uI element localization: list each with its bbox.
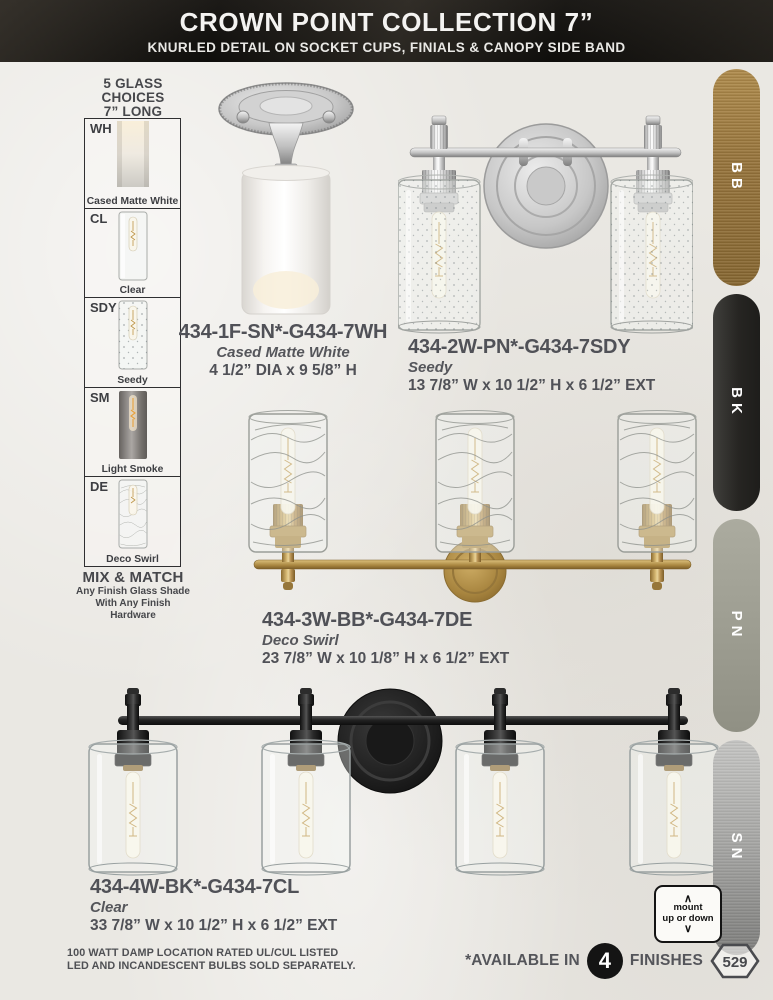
product-glass: Clear xyxy=(90,899,337,917)
finish-code: PN xyxy=(728,610,745,641)
glass-code: SDY xyxy=(90,300,117,315)
glass-choice-sm: SM Light Smoke xyxy=(85,388,180,478)
finish-swatch-bb: BB xyxy=(713,69,760,286)
product-sku: 434-3W-BB*-G434-7DE xyxy=(262,609,509,632)
glass-swatch-de-image xyxy=(104,479,162,551)
available-prefix: *AVAILABLE IN xyxy=(465,952,580,970)
crossbar xyxy=(118,716,688,725)
glass-label: Clear xyxy=(85,285,180,296)
glass-heading-line: 5 GLASS xyxy=(84,77,182,91)
glass-code: CL xyxy=(90,211,107,226)
glass-code: SM xyxy=(90,390,110,405)
finish-swatch-bk: BK xyxy=(713,294,760,511)
finish-code: SN xyxy=(728,832,745,863)
footer-note-line2: LED AND INCANDESCENT BULBS SOLD SEPARATE… xyxy=(67,960,356,973)
glass-heading-line: CHOICES xyxy=(84,91,182,105)
product-block-4w: 434-4W-BK*-G434-7CL Clear 33 7/8” W x 10… xyxy=(90,876,337,936)
glass-label: Cased Matte White xyxy=(85,196,180,207)
mix-match-line: Hardware xyxy=(72,610,194,622)
mount-direction-badge: ∧ mount up or down ∨ xyxy=(654,885,722,943)
glass-code: DE xyxy=(90,479,108,494)
mix-match-line: With Any Finish xyxy=(72,598,194,610)
product-sku: 434-4W-BK*-G434-7CL xyxy=(90,876,337,899)
product-glass: Deco Swirl xyxy=(262,632,509,650)
glass-label: Deco Swirl xyxy=(85,554,180,565)
white-glass-shade xyxy=(242,166,330,315)
finish-code: BB xyxy=(728,162,745,194)
wall-plate xyxy=(338,689,442,793)
footer-note: 100 WATT DAMP LOCATION RATED UL/CUL LIST… xyxy=(67,947,356,973)
mix-match-title: MIX & MATCH xyxy=(72,569,194,586)
glass-label: Light Smoke xyxy=(85,464,180,475)
fixture-3w-photo xyxy=(240,408,705,608)
product-block-2w: 434-2W-PN*-G434-7SDY Seedy 13 7/8” W x 1… xyxy=(408,336,655,396)
glass-choice-cl: CL Clear xyxy=(85,209,180,299)
chevron-down-icon: ∨ xyxy=(684,925,692,933)
glass-choice-wh: WH Cased Matte White xyxy=(85,119,180,209)
catalog-page: CROWN POINT COLLECTION 7” KNURLED DETAIL… xyxy=(0,0,773,1000)
glass-heading-line: 7” LONG xyxy=(84,105,182,119)
product-dimensions: 33 7/8” W x 10 1/2” H x 6 1/2” EXT xyxy=(90,917,337,936)
product-sku: 434-2W-PN*-G434-7SDY xyxy=(408,336,655,359)
glass-code: WH xyxy=(90,121,112,136)
product-dimensions: 4 1/2” DIA x 9 5/8” H xyxy=(163,362,403,381)
finish-swatch-pn: PN xyxy=(713,519,760,732)
crossbar xyxy=(410,148,681,157)
product-glass: Cased Matte White xyxy=(163,344,403,362)
product-sku: 434-1F-SN*-G434-7WH xyxy=(163,321,403,344)
product-block-3w: 434-3W-BB*-G434-7DE Deco Swirl 23 7/8” W… xyxy=(262,609,509,669)
page-number-badge: 529 xyxy=(710,942,760,980)
footer-note-line1: 100 WATT DAMP LOCATION RATED UL/CUL LIST… xyxy=(67,947,356,960)
glass-label: Seedy xyxy=(85,375,180,386)
glass-swatch-wh-image xyxy=(104,121,162,193)
wall-plate xyxy=(484,124,608,248)
glass-swatch-sm-image xyxy=(104,390,162,462)
glass-choice-de: DE Deco Swirl xyxy=(85,477,180,566)
product-glass: Seedy xyxy=(408,359,655,377)
page-header: CROWN POINT COLLECTION 7” KNURLED DETAIL… xyxy=(0,0,773,62)
fixture-1f-photo xyxy=(196,76,376,321)
mix-match-line: Any Finish Glass Shade xyxy=(72,586,194,598)
glass-swatch-cl-image xyxy=(104,211,162,283)
glass-choices-heading: 5 GLASS CHOICES 7” LONG xyxy=(84,77,182,118)
seedy-glass-left xyxy=(398,175,480,333)
footer-availability: *AVAILABLE IN 4 FINISHES 529 xyxy=(465,942,760,980)
fixture-4w-photo xyxy=(60,686,725,886)
collection-subtitle: KNURLED DETAIL ON SOCKET CUPS, FINIALS &… xyxy=(0,40,773,55)
fixture-2w-photo xyxy=(398,106,693,336)
product-dimensions: 13 7/8” W x 10 1/2” H x 6 1/2” EXT xyxy=(408,377,655,396)
available-suffix: FINISHES xyxy=(630,952,703,970)
deco-swirl-glasses xyxy=(249,411,696,553)
finish-code: BK xyxy=(728,387,745,419)
finish-count-badge: 4 xyxy=(587,943,623,979)
product-block-1f: 434-1F-SN*-G434-7WH Cased Matte White 4 … xyxy=(163,321,403,381)
mix-match-note: MIX & MATCH Any Finish Glass Shade With … xyxy=(72,569,194,621)
page-number: 529 xyxy=(710,943,760,981)
seedy-glass-right xyxy=(611,175,693,333)
product-dimensions: 23 7/8” W x 10 1/8” H x 6 1/2” EXT xyxy=(262,650,509,669)
collection-title: CROWN POINT COLLECTION 7” xyxy=(0,0,773,38)
